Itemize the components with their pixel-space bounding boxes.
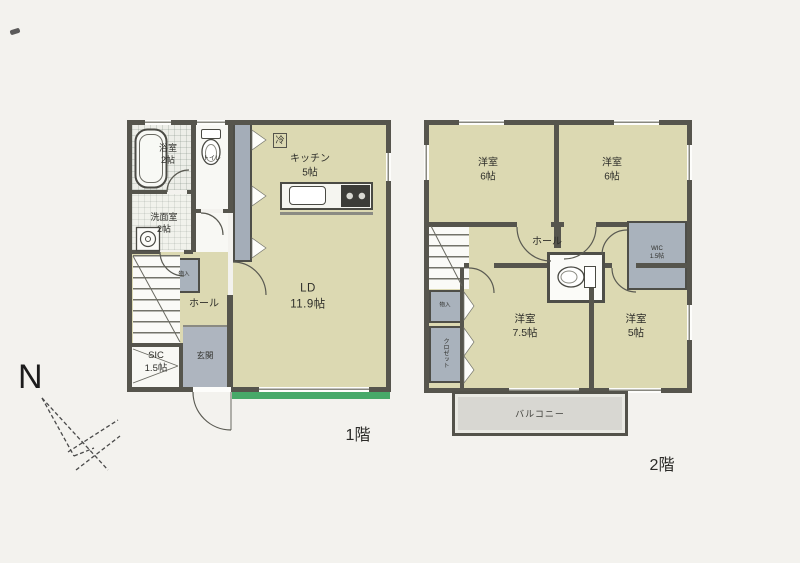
bedroom-nw-label: 洋室 6帖 xyxy=(478,157,498,184)
storage-label: 物入 xyxy=(178,271,189,278)
compass-arrow xyxy=(42,398,120,470)
sic-name: SIC xyxy=(148,350,164,363)
sic-size: 1.5帖 xyxy=(145,363,168,376)
bath-label: 浴室 2帖 xyxy=(159,142,177,166)
bath-size: 2帖 xyxy=(161,154,175,166)
ld-size: 11.9帖 xyxy=(290,297,326,313)
living-dining-label: LD 11.9帖 xyxy=(290,281,326,312)
washroom-label: 洗面室 2帖 xyxy=(150,211,177,235)
wic-label: WIC 1.5帖 xyxy=(650,245,664,261)
washroom-name: 洗面室 xyxy=(150,211,177,223)
ld-name: LD xyxy=(300,281,316,297)
compass: N xyxy=(14,352,126,480)
bedroom-se-label: 洋室 5帖 xyxy=(626,312,647,340)
sic-label: SIC 1.5帖 xyxy=(145,350,168,376)
floor2-plan: 洋室 6帖 洋室 6帖 ホール WIC 1.5帖 物入 クロゼット 洋室 7.5… xyxy=(424,120,692,393)
closet-door-marks xyxy=(252,130,266,258)
kitchen-size: 5帖 xyxy=(302,166,318,180)
garden-strip xyxy=(232,392,390,399)
compass-north-label: N xyxy=(18,358,43,396)
bedroom-sw-label: 洋室 7.5帖 xyxy=(512,312,537,340)
floor1-plan: 冷 xyxy=(127,120,391,392)
closet-door-marks xyxy=(464,292,474,383)
closet-label: クロゼット xyxy=(441,338,449,368)
floor1-symbols xyxy=(127,120,391,432)
kitchen-label: キッチン 5帖 xyxy=(290,153,330,180)
storage2-label: 物入 xyxy=(439,302,450,309)
floor2-caption: 2階 xyxy=(624,451,700,475)
scan-artifact xyxy=(9,28,20,36)
kitchen-name: キッチン xyxy=(290,153,330,167)
stair-line xyxy=(431,226,462,286)
hall2-label: ホール xyxy=(532,235,562,249)
bedroom-ne-label: 洋室 6帖 xyxy=(602,157,622,184)
washroom-size: 2帖 xyxy=(157,223,171,235)
balcony: バルコニー xyxy=(452,391,628,436)
toilet-label: トイレ xyxy=(203,155,221,163)
hall-label: ホール xyxy=(189,297,219,311)
balcony-label: バルコニー xyxy=(515,407,565,420)
floor1-caption: 1階 xyxy=(320,421,396,445)
floorplan-page: 冷 xyxy=(0,0,800,563)
entrance-label: 玄関 xyxy=(196,350,213,361)
toilet2-icon xyxy=(558,267,596,288)
bath-name: 浴室 xyxy=(159,142,177,154)
